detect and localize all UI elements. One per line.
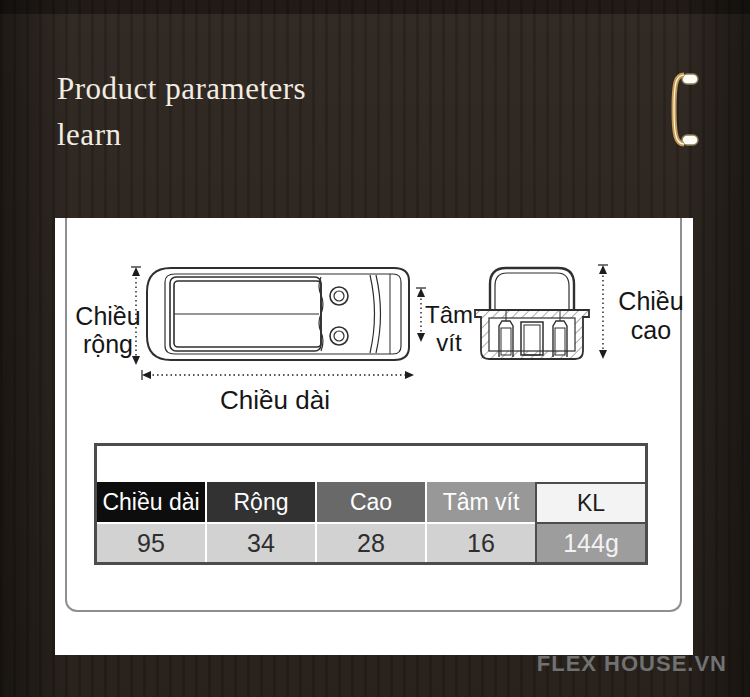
page-title: Product parameters learn xyxy=(57,66,306,158)
col-header-height: Cao xyxy=(317,482,427,522)
width-label: Chiều rộng xyxy=(73,302,143,358)
parameters-card: Chiều rộng Chiều dài Tâm vít Chiều cao C… xyxy=(55,218,693,655)
col-header-weight: KL xyxy=(535,482,645,522)
handle-top-view-drawing xyxy=(143,262,415,366)
col-header-length: Chiều dài xyxy=(97,482,207,522)
background-shade-top xyxy=(0,0,750,14)
product-parameters-banner: Product parameters learn xyxy=(0,0,750,697)
handle-side-view-drawing xyxy=(472,258,592,364)
screw-distance-label: Tâm vít xyxy=(421,301,477,357)
spec-table-value-row: 95 34 28 16 144g xyxy=(97,522,645,562)
spec-table-header-row: Chiều dài Rộng Cao Tâm vít KL xyxy=(97,482,645,522)
height-label: Chiều cao xyxy=(607,287,695,345)
page-title-line2: learn xyxy=(57,112,306,158)
value-screw: 16 xyxy=(427,522,535,562)
length-dimension-arrow xyxy=(140,368,416,382)
col-header-width: Rộng xyxy=(207,482,317,522)
value-width: 34 xyxy=(207,522,317,562)
length-label: Chiều dài xyxy=(175,385,375,416)
brand-watermark: FLEX HOUSE.VN xyxy=(537,651,727,677)
door-pull-handle-icon xyxy=(668,71,702,149)
value-length: 95 xyxy=(97,522,207,562)
spec-table-empty-row xyxy=(97,446,645,482)
spec-table: Chiều dài Rộng Cao Tâm vít KL 95 34 28 1… xyxy=(94,443,648,565)
value-height: 28 xyxy=(317,522,427,562)
col-header-screw: Tâm vít xyxy=(427,482,535,522)
value-weight: 144g xyxy=(535,522,645,562)
page-title-line1: Product parameters xyxy=(57,66,306,112)
